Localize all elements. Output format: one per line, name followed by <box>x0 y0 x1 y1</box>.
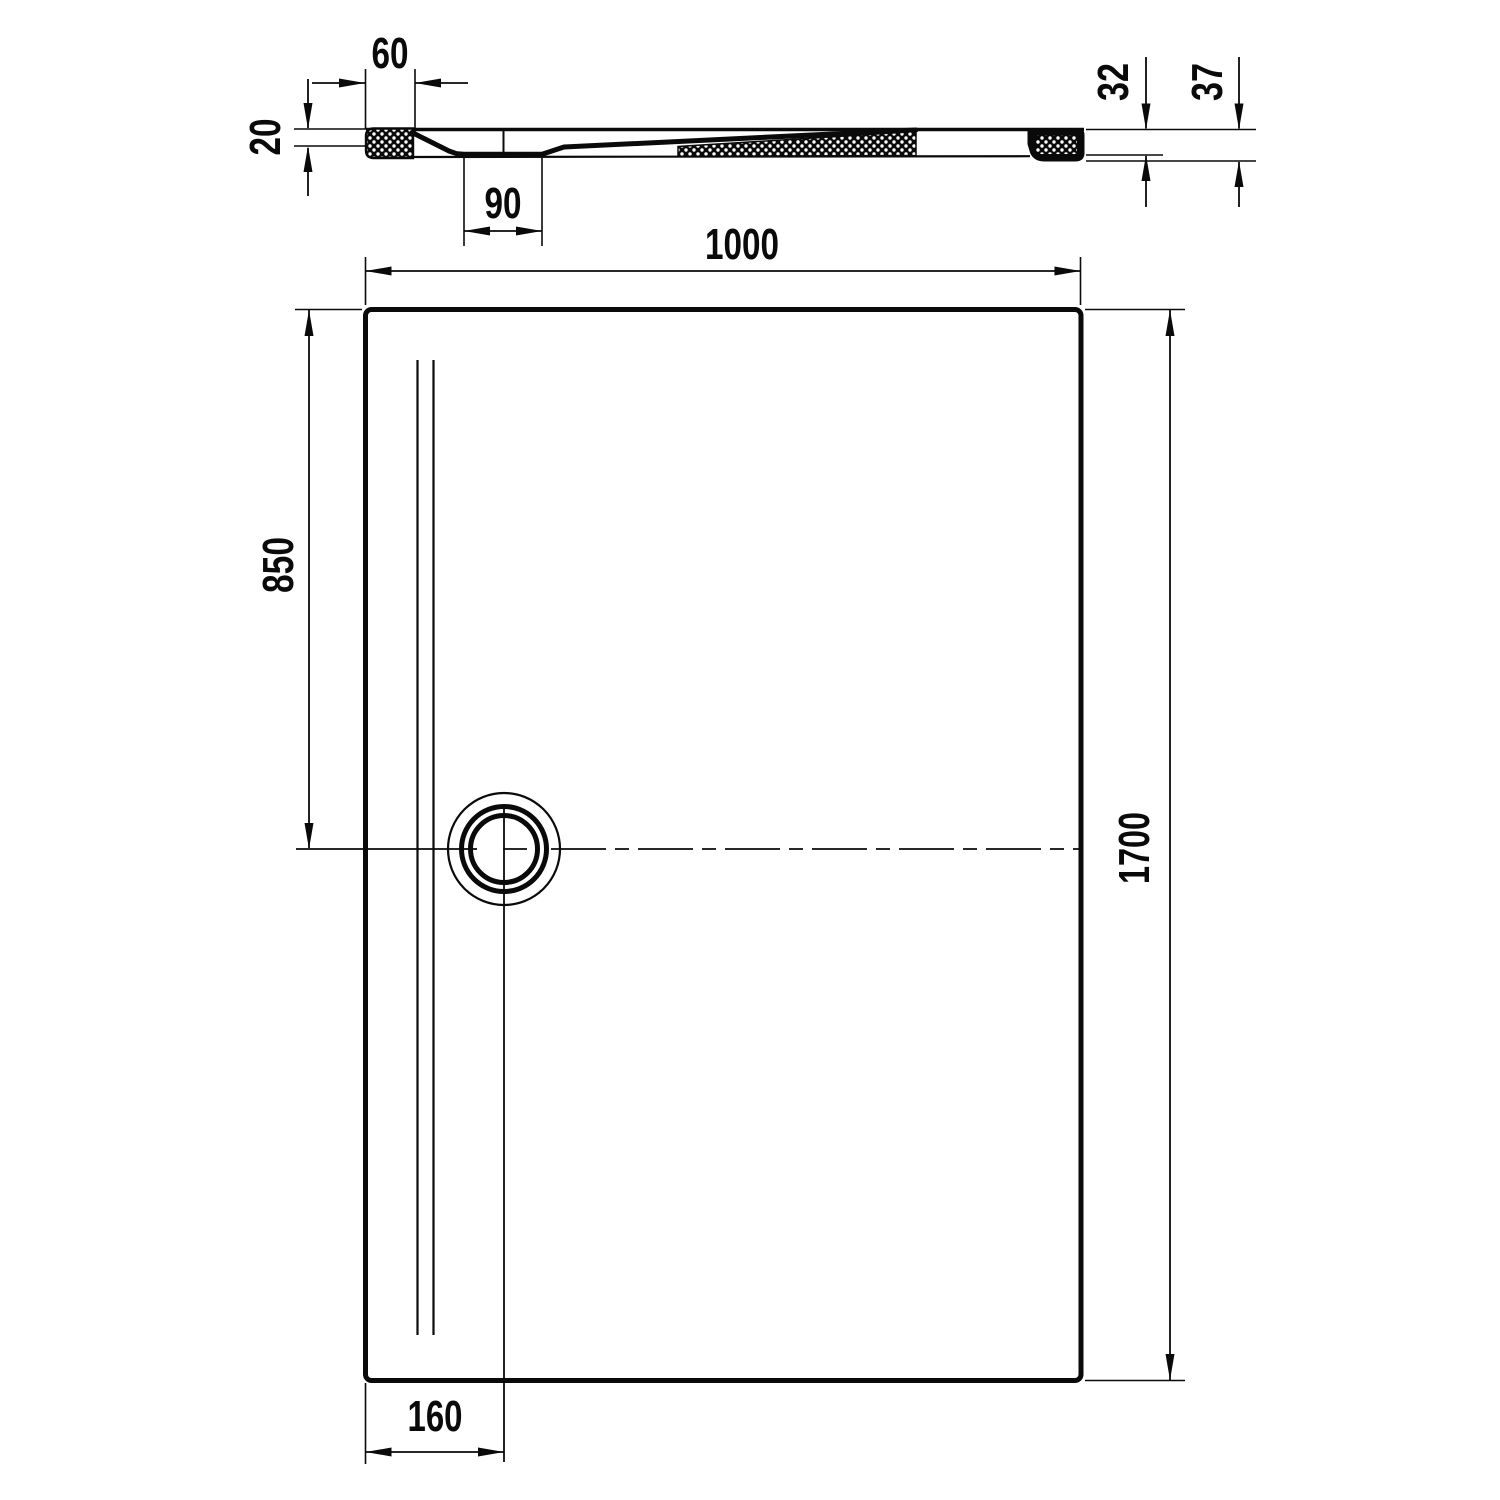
dim-right-heights: 32 37 <box>1086 57 1256 207</box>
dim-drain-offset-x: 160 <box>366 1383 505 1464</box>
section-view <box>366 128 1084 161</box>
arrowhead <box>1166 310 1175 336</box>
dim-label-60: 60 <box>372 29 409 78</box>
dim-overall-length: 1700 <box>1085 310 1185 1381</box>
dim-drain-offset-y: 850 <box>254 310 362 850</box>
arrowhead <box>1055 267 1081 276</box>
drawing-sheet: 60 20 90 32 37 <box>0 0 1500 1500</box>
arrowhead <box>1142 104 1151 130</box>
dim-edge-thickness: 20 <box>241 79 366 196</box>
arrowhead <box>478 1448 504 1457</box>
dim-label-1000: 1000 <box>705 220 779 269</box>
dim-label-20: 20 <box>241 119 290 156</box>
dim-label-850: 850 <box>254 537 303 593</box>
arrowhead <box>304 146 313 172</box>
dim-label-160: 160 <box>408 1392 463 1441</box>
left-foot-pad-hatch <box>366 129 413 159</box>
arrowhead <box>366 267 392 276</box>
arrowhead <box>304 103 313 129</box>
arrowhead <box>305 310 314 336</box>
plan-view <box>296 310 1081 1463</box>
arrowhead <box>305 823 314 849</box>
dim-overall-width: 1000 <box>366 220 1081 305</box>
technical-drawing: 60 20 90 32 37 <box>0 0 1500 1500</box>
right-foot-pad-hatch <box>1036 136 1077 155</box>
dim-drain-recess: 90 <box>464 158 542 246</box>
arrowhead <box>366 1448 392 1457</box>
arrowhead <box>415 79 441 88</box>
dim-label-37: 37 <box>1183 63 1232 101</box>
arrowhead <box>1166 1354 1175 1380</box>
drain-centerlines <box>296 805 1081 1462</box>
arrowhead <box>339 79 365 88</box>
dim-label-1700: 1700 <box>1110 812 1159 884</box>
dim-label-32: 32 <box>1089 63 1138 101</box>
arrowhead <box>1235 161 1244 187</box>
dim-rim-width: 60 <box>312 29 468 133</box>
arrowhead <box>1235 104 1244 130</box>
dim-label-90: 90 <box>485 179 522 228</box>
arrowhead <box>1142 155 1151 181</box>
